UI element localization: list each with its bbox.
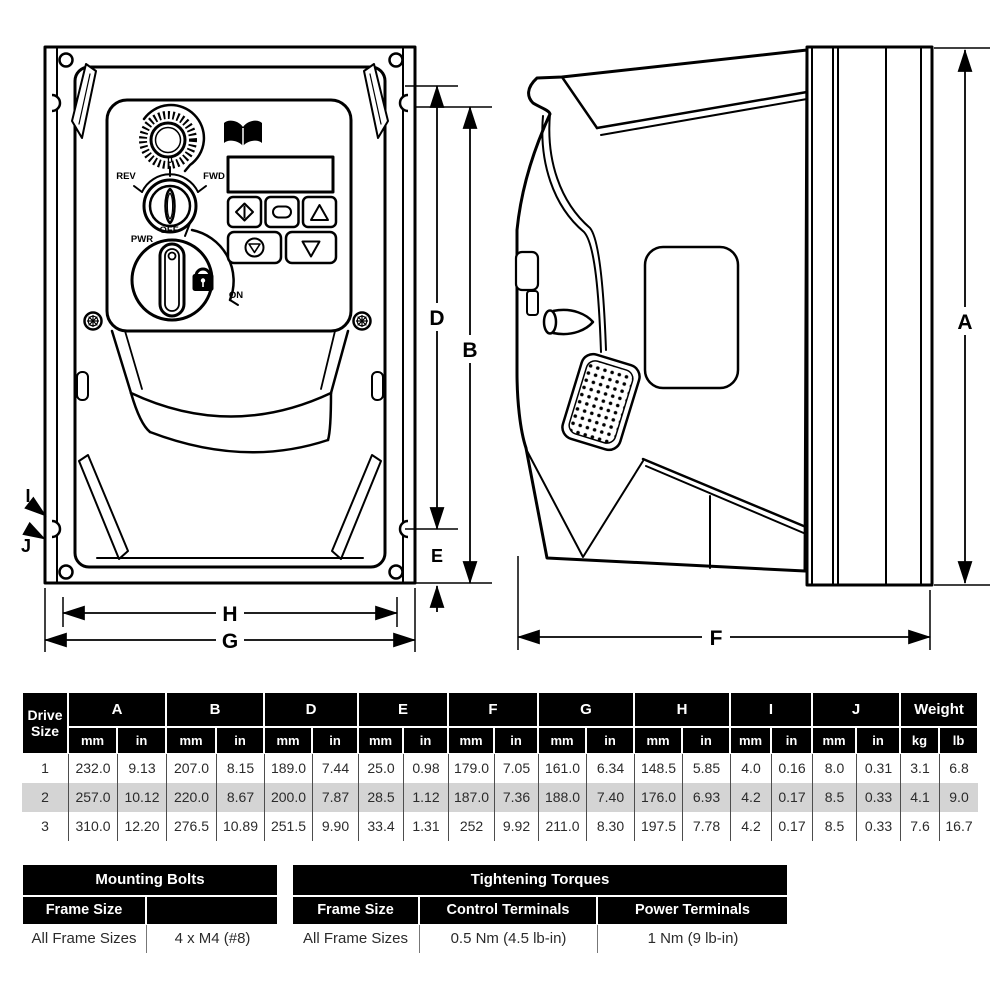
dim-label-h: H <box>222 603 237 626</box>
mounting-slot <box>52 95 60 111</box>
unit-header: in <box>117 727 166 754</box>
power-terminals-header: Power Terminals <box>597 896 788 925</box>
dim-label-g: G <box>222 630 238 653</box>
unit-header: in <box>856 727 900 754</box>
dim-value: 9.0 <box>939 783 978 812</box>
column-group-e: E <box>358 692 448 727</box>
dim-value: 0.98 <box>403 754 448 783</box>
unit-header: mm <box>448 727 494 754</box>
unit-header: mm <box>730 727 771 754</box>
drive-size-value: 3 <box>22 812 68 841</box>
dim-value: 12.20 <box>117 812 166 841</box>
terminal-tab <box>527 291 538 315</box>
column-group-a: A <box>68 692 166 727</box>
power-terminals-value: 1 Nm (9 lb-in) <box>597 925 788 953</box>
dim-value: 9.92 <box>494 812 538 841</box>
on-label: ON <box>229 290 243 301</box>
unit-header: in <box>403 727 448 754</box>
screw-left <box>85 313 102 330</box>
unit-header: in <box>771 727 812 754</box>
dim-value: 0.16 <box>771 754 812 783</box>
off-label: OFF <box>160 225 179 236</box>
mounting-slot <box>52 521 60 537</box>
dimension-drawings: REV 0 FWD PWR OFF ON <box>0 0 1000 688</box>
dim-value: 7.87 <box>312 783 358 812</box>
dim-value: 211.0 <box>538 812 586 841</box>
column-group-h: H <box>634 692 730 727</box>
unit-header: mm <box>634 727 682 754</box>
dim-value: 8.30 <box>586 812 634 841</box>
column-group-j: J <box>812 692 900 727</box>
dim-label-b: B <box>462 339 477 362</box>
dim-value: 3.1 <box>900 754 939 783</box>
drive-size-header: DriveSize <box>22 692 68 754</box>
control-terminals-header: Control Terminals <box>419 896 597 925</box>
dimensions-table: DriveSizeABDEFGHIJWeightmminmminmminmmin… <box>22 692 978 841</box>
screw-hole <box>60 54 73 67</box>
dim-value: 7.40 <box>586 783 634 812</box>
dim-value: 8.0 <box>812 754 856 783</box>
dim-label-i: I <box>25 486 30 506</box>
dim-label-a: A <box>957 311 972 334</box>
unit-header: lb <box>939 727 978 754</box>
dim-value: 5.85 <box>682 754 730 783</box>
bolt-spec-header <box>146 896 278 925</box>
dim-value: 176.0 <box>634 783 682 812</box>
dim-value: 0.33 <box>856 783 900 812</box>
dim-value: 7.36 <box>494 783 538 812</box>
dimensions-table-header: DriveSizeABDEFGHIJWeightmminmminmminmmin… <box>22 692 978 754</box>
unit-header: in <box>216 727 264 754</box>
column-group-weight: Weight <box>900 692 978 727</box>
dim-value: 207.0 <box>166 754 216 783</box>
dim-value: 0.17 <box>771 783 812 812</box>
dim-value: 28.5 <box>358 783 403 812</box>
unit-header: mm <box>812 727 856 754</box>
dim-value: 189.0 <box>264 754 312 783</box>
stop-button <box>228 232 281 263</box>
dim-value: 7.44 <box>312 754 358 783</box>
dim-value: 200.0 <box>264 783 312 812</box>
dim-value: 10.89 <box>216 812 264 841</box>
dim-value: 4.2 <box>730 812 771 841</box>
dim-label-d: D <box>429 307 444 330</box>
down-arrow-button <box>286 232 336 263</box>
column-group-g: G <box>538 692 634 727</box>
dim-value: 1.31 <box>403 812 448 841</box>
dim-value: 33.4 <box>358 812 403 841</box>
nameplate-recess <box>645 247 738 388</box>
up-arrow-button <box>303 197 336 227</box>
dim-value: 188.0 <box>538 783 586 812</box>
dim-value: 4.2 <box>730 783 771 812</box>
dim-value: 8.5 <box>812 783 856 812</box>
dim-table-row-2: 2257.010.12220.08.67200.07.8728.51.12187… <box>22 783 978 812</box>
column-group-i: I <box>730 692 812 727</box>
dim-value: 6.93 <box>682 783 730 812</box>
dim-value: 7.05 <box>494 754 538 783</box>
dim-value: 10.12 <box>117 783 166 812</box>
dimensions-table-body: 1232.09.13207.08.15189.07.4425.00.98179.… <box>22 754 978 841</box>
dim-table-row-3: 3310.012.20276.510.89251.59.9033.41.3125… <box>22 812 978 841</box>
tightening-torques-table: Tightening Torques Frame Size Control Te… <box>292 864 788 953</box>
bolt-spec-value: 4 x M4 (#8) <box>146 925 278 953</box>
heatsink <box>807 47 932 585</box>
dim-value: 7.6 <box>900 812 939 841</box>
drive-size-value: 1 <box>22 754 68 783</box>
unit-header: in <box>494 727 538 754</box>
fwd-label: FWD <box>203 171 225 182</box>
screw-hole <box>390 566 403 579</box>
dim-value: 197.5 <box>634 812 682 841</box>
dim-value: 220.0 <box>166 783 216 812</box>
screw-hole <box>60 566 73 579</box>
dim-label-f: F <box>710 627 723 650</box>
dim-value: 9.13 <box>117 754 166 783</box>
unit-header: mm <box>358 727 403 754</box>
frame-size-header: Frame Size <box>22 896 146 925</box>
dim-value: 251.5 <box>264 812 312 841</box>
dim-label-e: E <box>431 546 443 566</box>
dim-value: 0.33 <box>856 812 900 841</box>
dim-value: 252 <box>448 812 494 841</box>
mounting-bolts-table: Mounting Bolts Frame Size All Frame Size… <box>22 864 278 953</box>
lcd-display <box>228 157 333 192</box>
zero-label: 0 <box>167 155 172 166</box>
dim-value: 148.5 <box>634 754 682 783</box>
dim-label-j: J <box>21 536 31 556</box>
frame-size-value: All Frame Sizes <box>292 925 419 953</box>
frame-size-value: All Frame Sizes <box>22 925 146 953</box>
dim-value: 9.90 <box>312 812 358 841</box>
screw-right <box>354 313 371 330</box>
escape-button <box>266 197 299 227</box>
unit-header: mm <box>538 727 586 754</box>
mounting-bolts-title: Mounting Bolts <box>22 864 278 896</box>
dim-value: 8.15 <box>216 754 264 783</box>
dim-value: 0.31 <box>856 754 900 783</box>
drive-size-value: 2 <box>22 783 68 812</box>
dim-value: 6.8 <box>939 754 978 783</box>
column-group-d: D <box>264 692 358 727</box>
dim-value: 179.0 <box>448 754 494 783</box>
dim-value: 4.0 <box>730 754 771 783</box>
unit-header: mm <box>264 727 312 754</box>
dim-value: 310.0 <box>68 812 117 841</box>
dim-value: 8.5 <box>812 812 856 841</box>
unit-header: in <box>682 727 730 754</box>
unit-header: in <box>312 727 358 754</box>
tightening-torques-title: Tightening Torques <box>292 864 788 896</box>
dim-value: 161.0 <box>538 754 586 783</box>
mounting-slot <box>400 95 408 111</box>
dim-value: 8.67 <box>216 783 264 812</box>
drive-size-header-line: Size <box>31 723 59 739</box>
unit-header: in <box>586 727 634 754</box>
screw-hole <box>390 54 403 67</box>
dim-table-row-1: 1232.09.13207.08.15189.07.4425.00.98179.… <box>22 754 978 783</box>
unit-header: mm <box>68 727 117 754</box>
frame-size-header: Frame Size <box>292 896 419 925</box>
control-terminals-value: 0.5 Nm (4.5 lb-in) <box>419 925 597 953</box>
unit-header: mm <box>166 727 216 754</box>
pwr-label: PWR <box>131 234 153 245</box>
side-view-drawing: A F <box>516 47 990 650</box>
dim-value: 7.78 <box>682 812 730 841</box>
dim-value: 4.1 <box>900 783 939 812</box>
dim-value: 257.0 <box>68 783 117 812</box>
dim-value: 25.0 <box>358 754 403 783</box>
dim-value: 16.7 <box>939 812 978 841</box>
dim-value: 276.5 <box>166 812 216 841</box>
unit-header: kg <box>900 727 939 754</box>
terminal-tab <box>516 252 538 290</box>
front-view-drawing: REV 0 FWD PWR OFF ON <box>21 47 492 653</box>
dim-value: 187.0 <box>448 783 494 812</box>
dim-value: 232.0 <box>68 754 117 783</box>
dim-value: 0.17 <box>771 812 812 841</box>
dim-value: 1.12 <box>403 783 448 812</box>
rev-label: REV <box>116 171 136 182</box>
drive-dimensions-page: REV 0 FWD PWR OFF ON <box>0 0 1000 1000</box>
drive-size-header-line: Drive <box>27 707 62 723</box>
column-group-b: B <box>166 692 264 727</box>
column-group-f: F <box>448 692 538 727</box>
dim-value: 6.34 <box>586 754 634 783</box>
